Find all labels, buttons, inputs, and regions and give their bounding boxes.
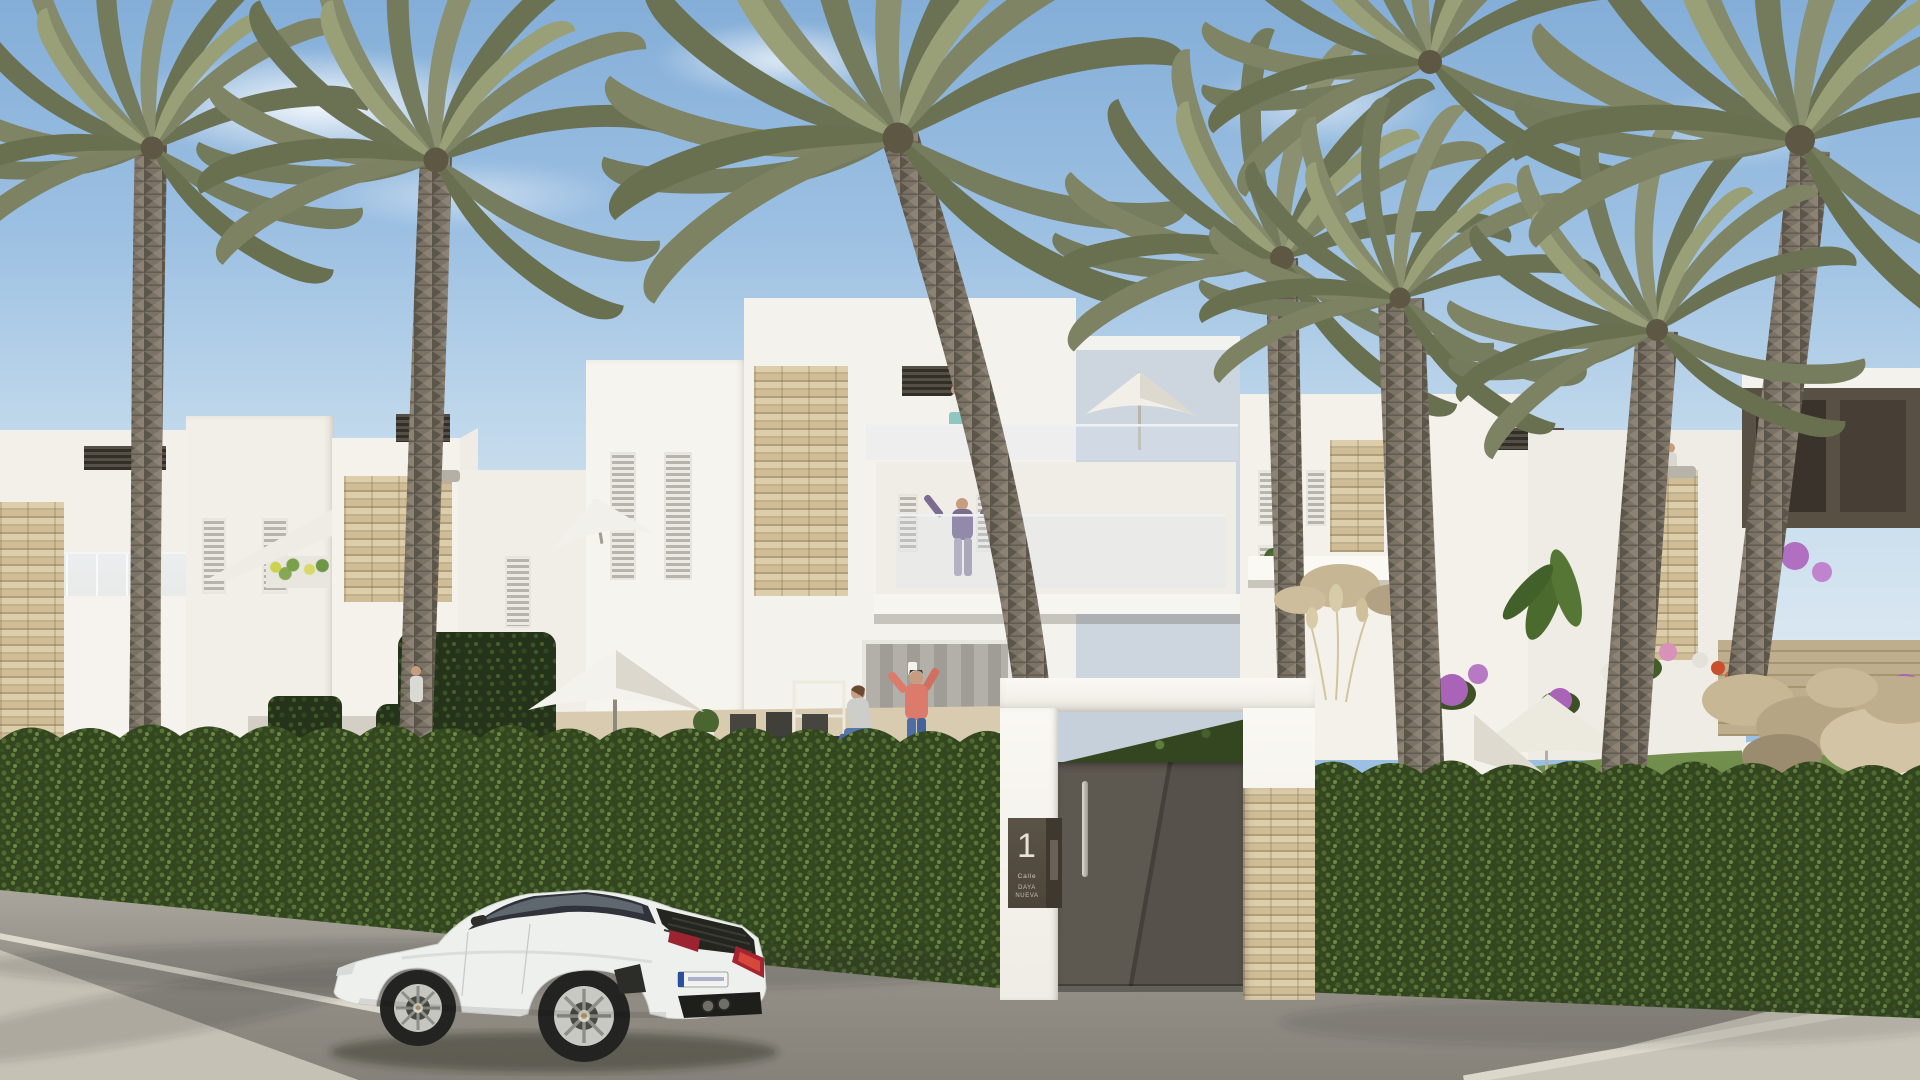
banana-plant	[1496, 546, 1588, 644]
address-plaque-side	[1046, 818, 1062, 908]
architectural-render: 1 Calle DAYA NUEVA	[0, 0, 1920, 1080]
plaque-street-label: Calle	[1008, 872, 1046, 881]
gate-lintel	[1000, 678, 1315, 712]
address-plaque: 1 Calle DAYA NUEVA	[1008, 818, 1046, 908]
scene-art	[0, 0, 1920, 1080]
intercom-panel	[1050, 840, 1058, 880]
plaque-street-name: DAYA NUEVA	[1008, 884, 1046, 900]
terrace-parasol	[542, 490, 655, 553]
exhaust-pipe	[718, 998, 730, 1010]
entrance-gate: 1 Calle DAYA NUEVA	[1000, 678, 1315, 1000]
hedge-right	[1302, 760, 1920, 1020]
hedge-shadow	[1280, 998, 1920, 1046]
palm-trunk	[128, 140, 167, 795]
glass-balustrade	[866, 424, 1238, 588]
license-plate	[678, 972, 728, 987]
exhaust-pipe	[702, 1000, 714, 1012]
gate-door-handle	[1082, 781, 1088, 877]
gate-door-shadow	[1058, 984, 1243, 992]
gate-pillar-stone	[1243, 788, 1315, 1000]
plaque-number: 1	[1008, 826, 1046, 866]
